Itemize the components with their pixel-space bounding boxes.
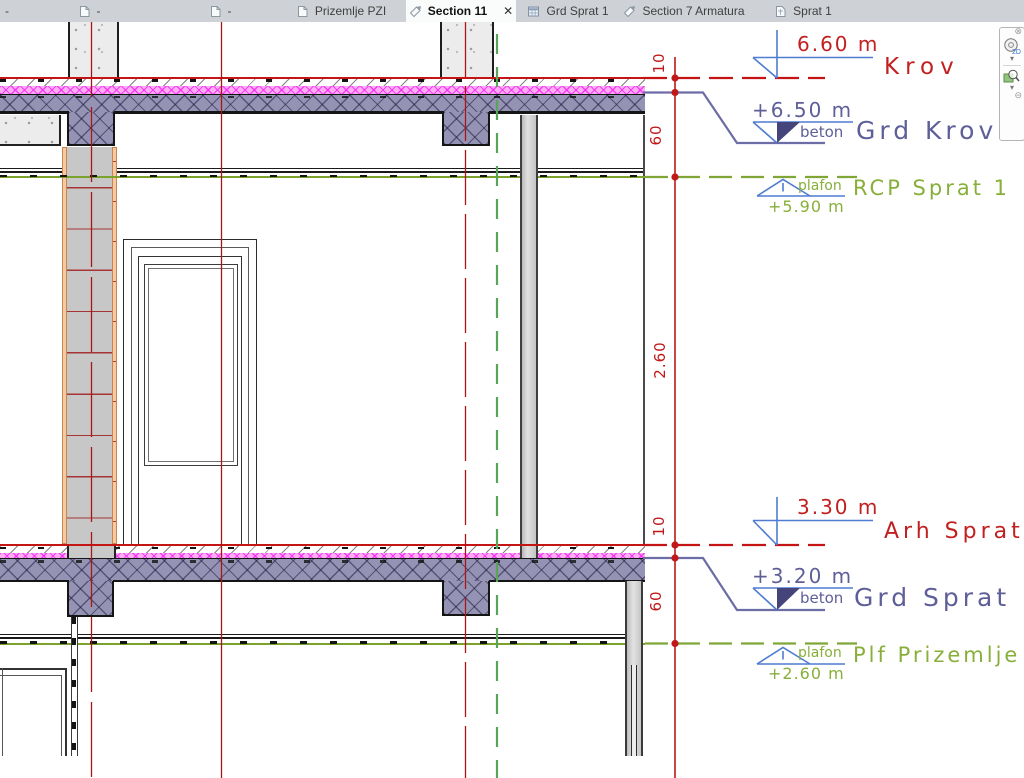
level-elevation-plf: +2.60 m bbox=[768, 664, 845, 683]
floor-slab-dash-marks bbox=[0, 560, 645, 563]
roof-parapet-wall-left bbox=[68, 22, 119, 77]
schedule-icon bbox=[527, 5, 540, 18]
roof-beam-left bbox=[67, 112, 115, 146]
level-material-grd-krov: beton bbox=[800, 123, 843, 141]
level-name-arh: Arh Sprat 1 bbox=[884, 519, 1024, 544]
level-name-plf: Plf Prizemlje bbox=[853, 643, 1020, 667]
ceiling-line bbox=[0, 168, 68, 170]
floor-slab-soffit-line bbox=[113, 580, 444, 583]
ground-door-edge bbox=[2, 668, 3, 756]
dim-text-260: 2.60 bbox=[651, 341, 669, 378]
tab-label: - bbox=[97, 4, 101, 18]
level-note-plf: plafon bbox=[798, 645, 842, 661]
roof-slab-soffit-line bbox=[114, 111, 444, 114]
floor-beam-right bbox=[442, 581, 490, 616]
tab-prizemlje-pzi[interactable]: Prizemlje PZI bbox=[276, 0, 406, 22]
ground-door-jamb-outer bbox=[65, 668, 67, 756]
collapse-navbar-icon[interactable]: ⊗ bbox=[1014, 28, 1022, 37]
roof-slab-dash-marks bbox=[0, 96, 645, 99]
view-tab-bar: - - - Prizemlje PZI Section 11 ✕ Grd Spr… bbox=[0, 0, 1024, 22]
tab-label: Section 7 Armatura bbox=[642, 4, 744, 18]
revit-window: - - - Prizemlje PZI Section 11 ✕ Grd Spr… bbox=[0, 0, 1024, 778]
level-name-grd-krov: Grd Krov bbox=[856, 116, 997, 145]
wall-finish-layer-right bbox=[112, 147, 117, 544]
ceiling-line bbox=[537, 168, 643, 170]
level-elevation-rcp: +5.90 m bbox=[768, 197, 845, 216]
tab-partial[interactable]: - bbox=[0, 0, 14, 22]
ceiling-line bbox=[0, 171, 68, 173]
tab-sprat-1[interactable]: Sprat 1 bbox=[748, 0, 858, 22]
level-name-rcp: RCP Sprat 1 bbox=[853, 176, 1010, 200]
close-tab-icon[interactable]: ✕ bbox=[503, 4, 513, 18]
wheel-options-chevron-icon[interactable]: ▾ bbox=[1010, 55, 1014, 63]
partition-wall-cut bbox=[520, 115, 538, 559]
wall-base-through-finish bbox=[67, 546, 116, 559]
tab-section-11[interactable]: Section 11 ✕ bbox=[406, 0, 516, 22]
roof-beam-right bbox=[442, 112, 490, 146]
level-material-grd-sprat1: beton bbox=[800, 589, 843, 607]
steering-wheel-2d-icon[interactable]: 2D bbox=[1003, 37, 1021, 55]
floor-slab-soffit-line bbox=[0, 580, 69, 583]
level-name-grd-sprat1: Grd Sprat 1 bbox=[854, 583, 1024, 612]
zoom-icon[interactable] bbox=[1003, 68, 1021, 84]
ground-door-head-line-inner bbox=[0, 675, 61, 676]
ceiling-line-lower bbox=[0, 637, 625, 639]
level-elevation-grd-sprat1: +3.20 m bbox=[752, 564, 853, 588]
concrete-beam-elevation-left bbox=[0, 115, 61, 147]
ground-door-head-line bbox=[0, 668, 65, 670]
sheet-icon bbox=[209, 5, 222, 18]
tab-sheet-2[interactable]: - bbox=[164, 0, 276, 22]
section-marker-icon bbox=[623, 5, 636, 18]
level-note-rcp: plafon bbox=[798, 178, 842, 194]
level-elevation-krov: 6.60 m bbox=[797, 32, 879, 56]
level-elevation-arh: 3.30 m bbox=[797, 495, 879, 519]
dim-text-10-roof: 10 bbox=[650, 52, 668, 73]
door-panel-inner bbox=[148, 268, 234, 462]
dim-text-60-roof: 60 bbox=[647, 124, 665, 145]
roof-parapet-wall-right bbox=[440, 22, 494, 77]
dim-text-10-floor: 10 bbox=[650, 515, 668, 536]
plafon-dash-marks-lower bbox=[0, 641, 645, 644]
tab-grd-sprat-1[interactable]: Grd Sprat 1 bbox=[516, 0, 620, 22]
ground-door-frame-right bbox=[631, 665, 638, 756]
navbar-more-icon[interactable]: ⊖ bbox=[1014, 92, 1022, 101]
glazed-partition-edge bbox=[71, 617, 78, 756]
tab-section-7-armatura[interactable]: Section 7 Armatura bbox=[620, 0, 748, 22]
ceiling-line-lower bbox=[0, 634, 625, 636]
dim-text-60-floor: 60 bbox=[647, 590, 665, 611]
tab-label: Grd Sprat 1 bbox=[546, 4, 608, 18]
floor-beam-left bbox=[67, 581, 114, 617]
ground-door-jamb-inner bbox=[61, 675, 62, 756]
plafon-dash-marks bbox=[0, 175, 645, 178]
ceiling-line bbox=[115, 171, 520, 173]
partition-fixings bbox=[72, 617, 76, 756]
tab-label: Section 11 bbox=[428, 4, 487, 18]
level-name-krov: Krov bbox=[884, 54, 960, 80]
plan-icon bbox=[774, 5, 787, 18]
zoom-options-chevron-icon[interactable]: ▾ bbox=[1010, 84, 1014, 92]
floor-slab-soffit-line bbox=[489, 580, 645, 583]
tab-label: - bbox=[5, 4, 9, 18]
section-marker-icon bbox=[409, 5, 422, 18]
level-elevation-grd-krov: +6.50 m bbox=[752, 98, 853, 122]
tab-label: Prizemlje PZI bbox=[315, 4, 386, 18]
tab-label: - bbox=[228, 4, 232, 18]
right-wall-edge-line bbox=[643, 115, 645, 545]
tab-sheet-1[interactable]: - bbox=[14, 0, 164, 22]
sheet-icon bbox=[78, 5, 91, 18]
roof-slab-soffit-line bbox=[489, 111, 645, 114]
wall-masonry-core bbox=[67, 147, 112, 544]
roof-slab-soffit-line bbox=[0, 111, 69, 114]
ceiling-line bbox=[115, 168, 520, 170]
ceiling-line bbox=[537, 171, 643, 173]
tab-label: Sprat 1 bbox=[793, 4, 832, 18]
roof-dash-marks bbox=[0, 79, 645, 82]
sheet-icon bbox=[296, 5, 309, 18]
navigation-bar: ⊗ 2D ▾ ▾ ⊖ bbox=[999, 27, 1024, 141]
roof-insulation-layer bbox=[0, 86, 645, 94]
